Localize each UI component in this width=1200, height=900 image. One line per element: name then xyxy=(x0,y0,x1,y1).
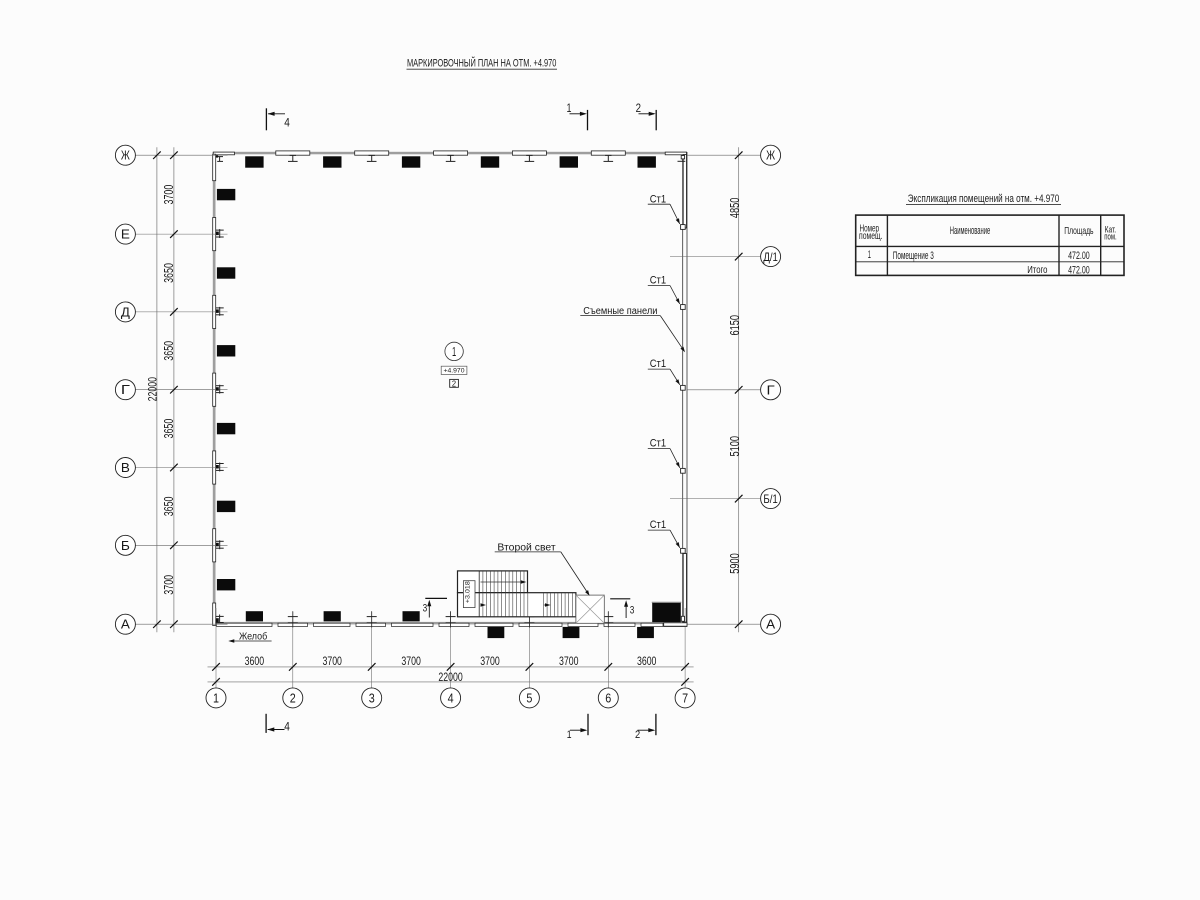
svg-text:помещ.: помещ. xyxy=(859,231,883,242)
svg-text:5: 5 xyxy=(526,691,532,705)
svg-text:3650: 3650 xyxy=(161,263,176,283)
svg-text:Д: Д xyxy=(121,305,131,319)
svg-text:3600: 3600 xyxy=(245,654,265,668)
svg-text:Б/1: Б/1 xyxy=(763,492,778,506)
svg-text:1: 1 xyxy=(567,103,572,115)
svg-text:5100: 5100 xyxy=(727,436,742,457)
svg-text:Г: Г xyxy=(767,383,775,397)
svg-text:6150: 6150 xyxy=(727,315,742,336)
svg-text:2: 2 xyxy=(290,691,296,705)
svg-text:Ст1: Ст1 xyxy=(650,519,666,531)
svg-text:3700: 3700 xyxy=(559,654,579,668)
svg-text:1: 1 xyxy=(868,249,871,261)
svg-text:3700: 3700 xyxy=(401,654,421,668)
svg-text:МАРКИРОВОЧНЫЙ ПЛАН НА ОТМ. +4.: МАРКИРОВОЧНЫЙ ПЛАН НА ОТМ. +4.970 xyxy=(407,57,557,70)
svg-text:3: 3 xyxy=(630,604,635,616)
svg-text:Г: Г xyxy=(121,383,130,397)
svg-text:Итого: Итого xyxy=(1027,264,1047,276)
svg-text:Ст1: Ст1 xyxy=(650,275,666,287)
svg-text:Наименование: Наименование xyxy=(950,225,991,237)
svg-text:А: А xyxy=(121,618,131,632)
svg-text:2: 2 xyxy=(636,103,641,115)
svg-text:4: 4 xyxy=(448,691,454,705)
svg-text:+3.018: +3.018 xyxy=(465,581,472,604)
svg-text:3650: 3650 xyxy=(161,341,176,361)
svg-text:1: 1 xyxy=(452,345,456,359)
svg-text:Ст1: Ст1 xyxy=(650,438,666,450)
svg-text:Ст1: Ст1 xyxy=(650,193,666,205)
svg-text:4: 4 xyxy=(284,116,290,130)
svg-text:Д/1: Д/1 xyxy=(763,250,778,264)
svg-text:3700: 3700 xyxy=(480,654,500,668)
svg-text:3650: 3650 xyxy=(161,497,176,517)
svg-text:3700: 3700 xyxy=(161,185,176,205)
svg-text:5900: 5900 xyxy=(727,553,742,574)
svg-text:4: 4 xyxy=(284,719,290,733)
svg-text:Ж: Ж xyxy=(121,149,130,163)
svg-text:6: 6 xyxy=(605,691,611,705)
svg-text:1: 1 xyxy=(213,691,219,705)
svg-text:Е: Е xyxy=(121,228,130,242)
svg-text:+4.970: +4.970 xyxy=(444,368,465,375)
svg-text:3: 3 xyxy=(369,691,375,705)
svg-text:3700: 3700 xyxy=(322,654,342,668)
svg-text:22000: 22000 xyxy=(438,670,463,684)
svg-text:472.00: 472.00 xyxy=(1068,250,1090,262)
svg-text:472.00: 472.00 xyxy=(1068,265,1090,277)
svg-text:4850: 4850 xyxy=(727,198,742,219)
svg-text:3700: 3700 xyxy=(161,575,176,595)
svg-text:Б: Б xyxy=(121,539,130,553)
svg-text:22000: 22000 xyxy=(145,377,159,402)
svg-text:3: 3 xyxy=(423,602,428,614)
svg-text:Экспликация помещений на отм.: Экспликация помещений на отм. +4.970 xyxy=(908,193,1060,205)
svg-text:А: А xyxy=(766,618,776,632)
svg-text:2: 2 xyxy=(635,729,640,741)
svg-text:7: 7 xyxy=(682,691,688,705)
svg-text:В: В xyxy=(121,461,130,475)
svg-text:1: 1 xyxy=(567,729,572,741)
svg-text:3650: 3650 xyxy=(161,419,176,439)
svg-text:2: 2 xyxy=(452,378,456,388)
svg-text:Помещение 3: Помещение 3 xyxy=(893,250,934,262)
svg-text:Ст1: Ст1 xyxy=(650,358,666,370)
svg-text:3600: 3600 xyxy=(637,654,657,668)
svg-text:Площадь: Площадь xyxy=(1064,225,1094,237)
svg-text:Ж: Ж xyxy=(766,149,775,163)
svg-text:пом.: пом. xyxy=(1104,231,1117,242)
